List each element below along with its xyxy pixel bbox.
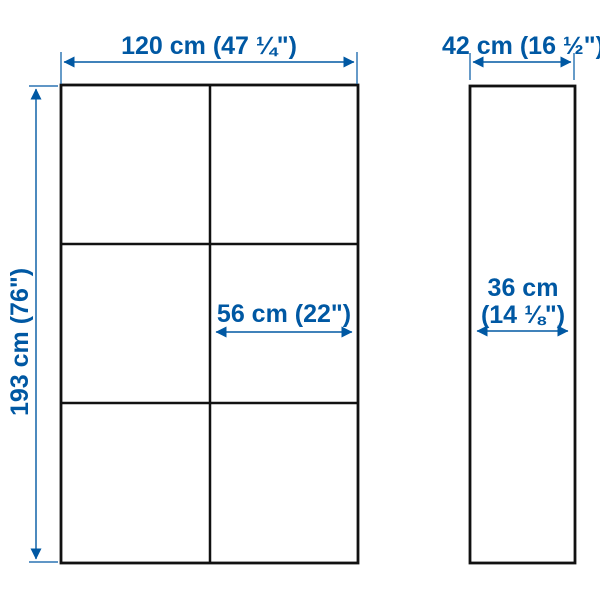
width-dimension: 120 cm (47 ¼") — [61, 32, 357, 84]
height-dimension: 193 cm (76") — [6, 86, 58, 562]
door-width-dimension: 56 cm (22") — [216, 300, 352, 332]
width-dimension-label: 120 cm (47 ¼") — [121, 32, 297, 60]
door-width-dimension-label: 56 cm (22") — [217, 300, 351, 328]
height-dimension-label: 193 cm (76") — [6, 268, 34, 416]
depth-dimension-label: 42 cm (16 ½") — [442, 32, 600, 60]
inner-depth-dimension-label-line1: 36 cm — [488, 274, 559, 302]
dimension-diagram-canvas: 120 cm (47 ¼") 193 cm (76") 56 cm (22") … — [0, 0, 600, 600]
inner-depth-dimension: 36 cm (14 ⅛") — [477, 274, 568, 331]
dimension-diagram: 120 cm (47 ¼") 193 cm (76") 56 cm (22") … — [0, 0, 600, 600]
depth-dimension: 42 cm (16 ½") — [442, 32, 600, 80]
inner-depth-dimension-label-line2: (14 ⅛") — [481, 301, 565, 329]
